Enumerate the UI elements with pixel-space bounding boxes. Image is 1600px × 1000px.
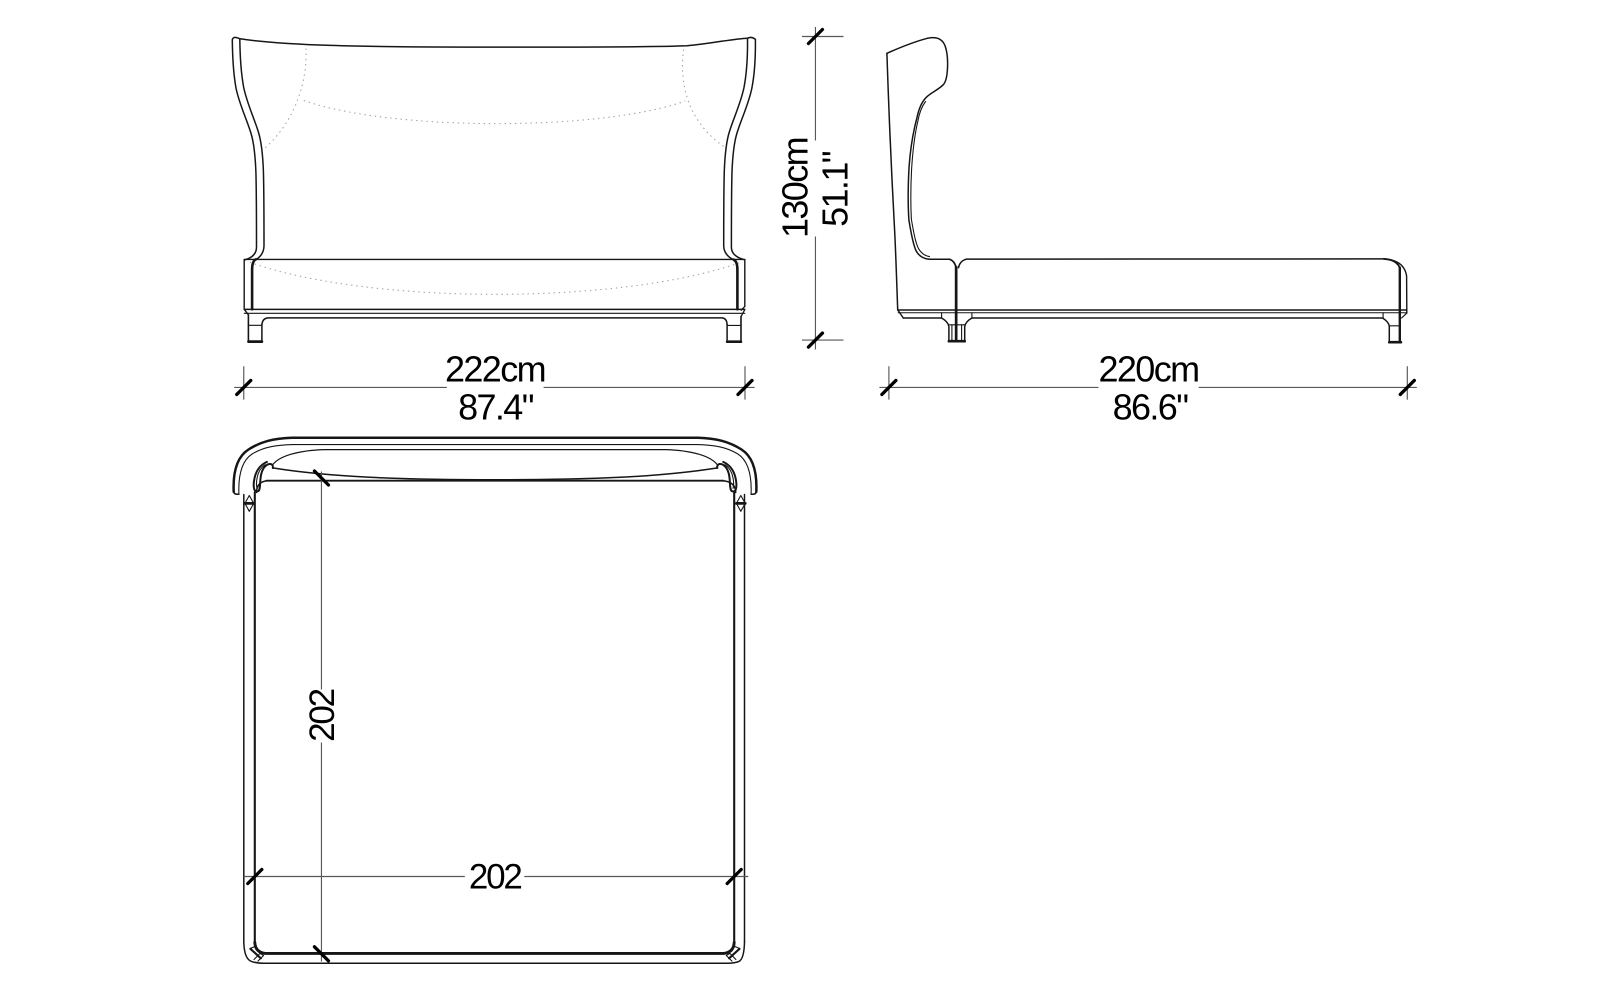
svg-text:202: 202	[303, 689, 342, 742]
svg-text:220cm: 220cm	[1098, 348, 1198, 389]
svg-text:202: 202	[469, 857, 522, 896]
svg-text:222cm: 222cm	[445, 348, 545, 389]
svg-text:51.1": 51.1"	[815, 151, 856, 227]
svg-text:86.6": 86.6"	[1113, 387, 1189, 428]
svg-text:130cm: 130cm	[775, 138, 816, 238]
svg-text:87.4": 87.4"	[458, 387, 534, 428]
